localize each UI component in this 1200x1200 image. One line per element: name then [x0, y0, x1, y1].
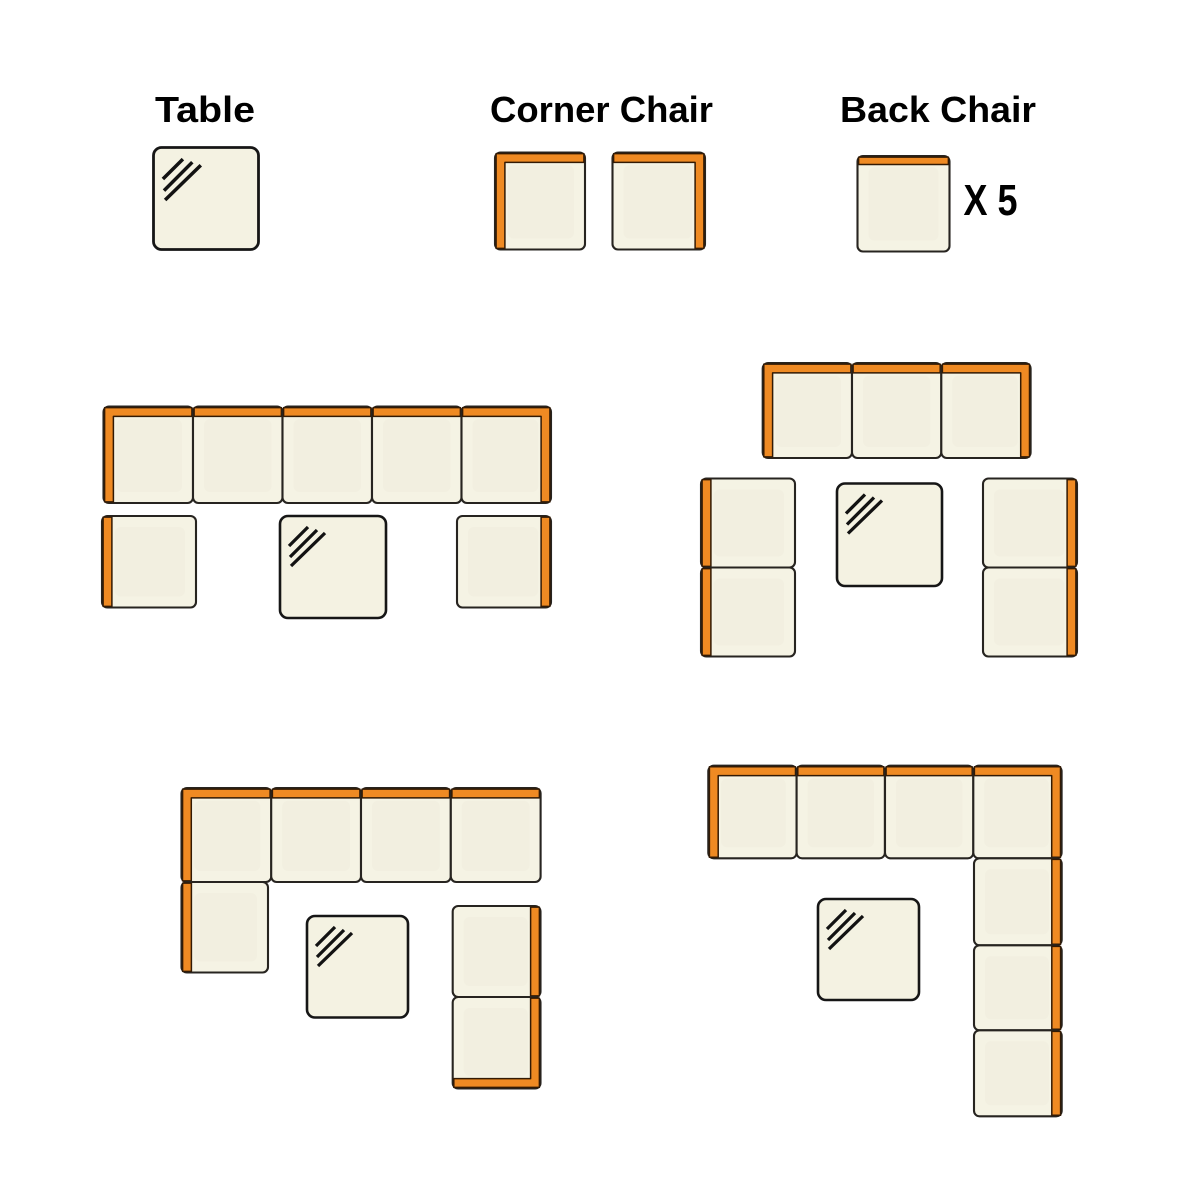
svg-text:X 5: X 5 [964, 176, 1018, 225]
svg-text:Table: Table [155, 89, 255, 130]
svg-text:Corner Chair: Corner Chair [490, 89, 713, 130]
svg-text:Back Chair: Back Chair [840, 89, 1036, 130]
